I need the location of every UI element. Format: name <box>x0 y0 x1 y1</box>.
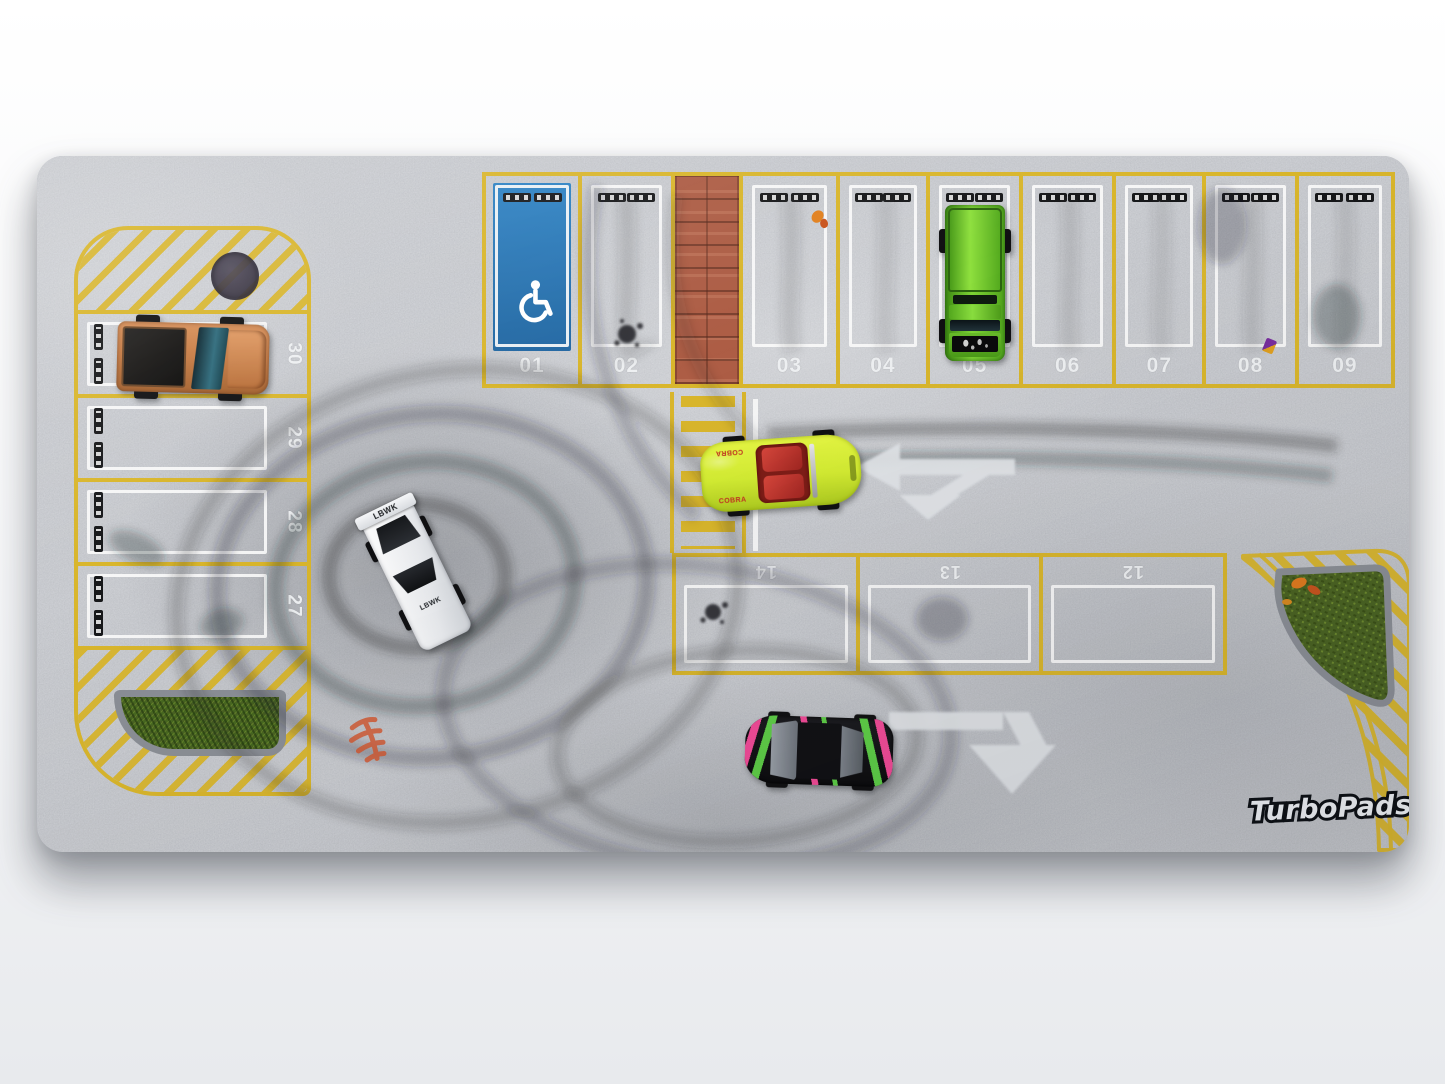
roof <box>796 722 842 780</box>
wheel-stop <box>1068 193 1096 202</box>
brand-logo: TurboPads <box>1239 780 1409 834</box>
spot-outline <box>87 490 267 554</box>
windshield <box>770 719 798 780</box>
left-parking-column: 30 29 28 27 <box>74 226 311 796</box>
seat <box>763 473 805 500</box>
middle-parking-row: 14 13 12 <box>672 553 1227 675</box>
spot-number: 03 <box>743 354 835 378</box>
spot-outline <box>591 185 662 347</box>
parking-spot-09: 09 <box>1295 176 1391 384</box>
wheel-stop <box>94 576 103 602</box>
wheel-stop <box>627 193 655 202</box>
parking-spot-06: 06 <box>1019 176 1112 384</box>
seat <box>761 446 803 473</box>
spot-number: 13 <box>860 561 1040 582</box>
brick-walkway <box>671 176 740 384</box>
wheel-stop <box>855 193 883 202</box>
spot-outline <box>1032 185 1103 347</box>
wheel-stop <box>1039 193 1067 202</box>
wheel-stop <box>94 408 103 434</box>
spot-outline <box>1308 185 1382 347</box>
rear-window <box>840 726 864 779</box>
wheel-stop <box>503 193 531 202</box>
wheel-stop <box>1159 193 1187 202</box>
parking-spot-14: 14 <box>676 557 856 671</box>
parking-spot-12: 12 <box>1039 557 1223 671</box>
spot-outline <box>87 406 267 470</box>
truck-body <box>945 205 1005 361</box>
parking-spot-13: 13 <box>856 557 1040 671</box>
spot-outline <box>1125 185 1193 347</box>
parking-spot-01-accessible: 01 <box>486 176 578 384</box>
hood-graphic <box>952 336 998 352</box>
spot-number: 04 <box>840 354 927 378</box>
wheel-stop <box>1132 193 1160 202</box>
spot-number: 02 <box>582 354 671 378</box>
wheel-stop <box>94 492 103 518</box>
spot-number: 07 <box>1116 354 1202 378</box>
green-pickup-truck <box>938 203 1012 363</box>
spot-number: 09 <box>1299 354 1391 378</box>
wheel-stop <box>598 193 626 202</box>
hood <box>227 330 267 389</box>
windshield <box>950 320 1000 331</box>
hood-text: LBWK <box>404 589 457 620</box>
wheel-stop <box>534 193 562 202</box>
wheel-stop <box>791 193 819 202</box>
wheel-stop <box>94 526 103 552</box>
wheel-stop <box>1315 193 1343 202</box>
parking-spot-04: 04 <box>836 176 927 384</box>
spot-outline <box>849 185 918 347</box>
parking-spot-03: 03 <box>739 176 835 384</box>
spot-outline <box>1051 585 1215 663</box>
side-text: COBRA <box>719 496 747 505</box>
wheel-stop <box>1346 193 1374 202</box>
car-body <box>744 714 894 787</box>
spot-number: 01 <box>486 354 578 378</box>
wheel-stop <box>94 358 103 384</box>
grass-island-left <box>114 690 286 756</box>
parking-spot-29: 29 <box>78 398 307 482</box>
wheel-stop <box>94 442 103 468</box>
car-body: COBRA COBRA <box>699 433 863 514</box>
wheel-stop <box>760 193 788 202</box>
spot-number: 27 <box>282 594 304 617</box>
hood <box>949 333 1001 357</box>
wheel-stop <box>94 610 103 636</box>
truck-bed-cover <box>121 326 187 388</box>
front-grille <box>849 455 857 481</box>
spot-outline <box>87 574 267 638</box>
rear-window <box>953 295 997 304</box>
corner-hatch-area <box>78 650 307 792</box>
open-cockpit <box>755 442 811 503</box>
manhole-cover <box>211 252 259 300</box>
wheel-stop <box>1251 193 1279 202</box>
truck-body <box>116 321 270 395</box>
parking-spot-28: 28 <box>78 482 307 566</box>
cab-roof <box>949 305 1001 319</box>
copper-pickup-truck <box>114 314 272 402</box>
wheel-stop <box>1222 193 1250 202</box>
spot-number: 06 <box>1023 354 1112 378</box>
side-text: COBRA <box>715 448 743 457</box>
windshield <box>393 557 442 596</box>
desk-mat: 01 02 03 04 <box>37 156 1409 852</box>
spot-number: 08 <box>1206 354 1295 378</box>
parking-spot-08: 08 <box>1202 176 1295 384</box>
spot-number: 12 <box>1043 561 1223 582</box>
wheel-stop <box>946 193 974 202</box>
parking-spot-27: 27 <box>78 566 307 650</box>
spot-number: 28 <box>282 510 304 533</box>
spot-outline <box>868 585 1032 663</box>
spot-number: 30 <box>282 342 304 365</box>
yellow-cobra-roadster: COBRA COBRA <box>696 426 865 519</box>
wheel-stop <box>883 193 911 202</box>
brand-logo-text: TurboPads <box>1249 790 1409 828</box>
spot-outline <box>1215 185 1286 347</box>
no-parking-hatch-cap <box>78 230 307 314</box>
wheelchair-icon <box>509 278 555 324</box>
parking-spot-02: 02 <box>578 176 671 384</box>
black-hatchback-pink-green-livery <box>742 709 897 792</box>
wheel-stop <box>975 193 1003 202</box>
spot-number: 29 <box>282 426 304 449</box>
spot-number: 14 <box>676 561 856 582</box>
windshield <box>191 327 229 390</box>
spot-outline <box>752 185 826 347</box>
spot-outline <box>684 585 848 663</box>
parking-spot-07: 07 <box>1112 176 1202 384</box>
parking-lot-mat-surface: 01 02 03 04 <box>37 156 1409 852</box>
windshield-frame <box>809 443 818 498</box>
camper-shell <box>948 208 1002 292</box>
wheel-stop <box>94 324 103 350</box>
